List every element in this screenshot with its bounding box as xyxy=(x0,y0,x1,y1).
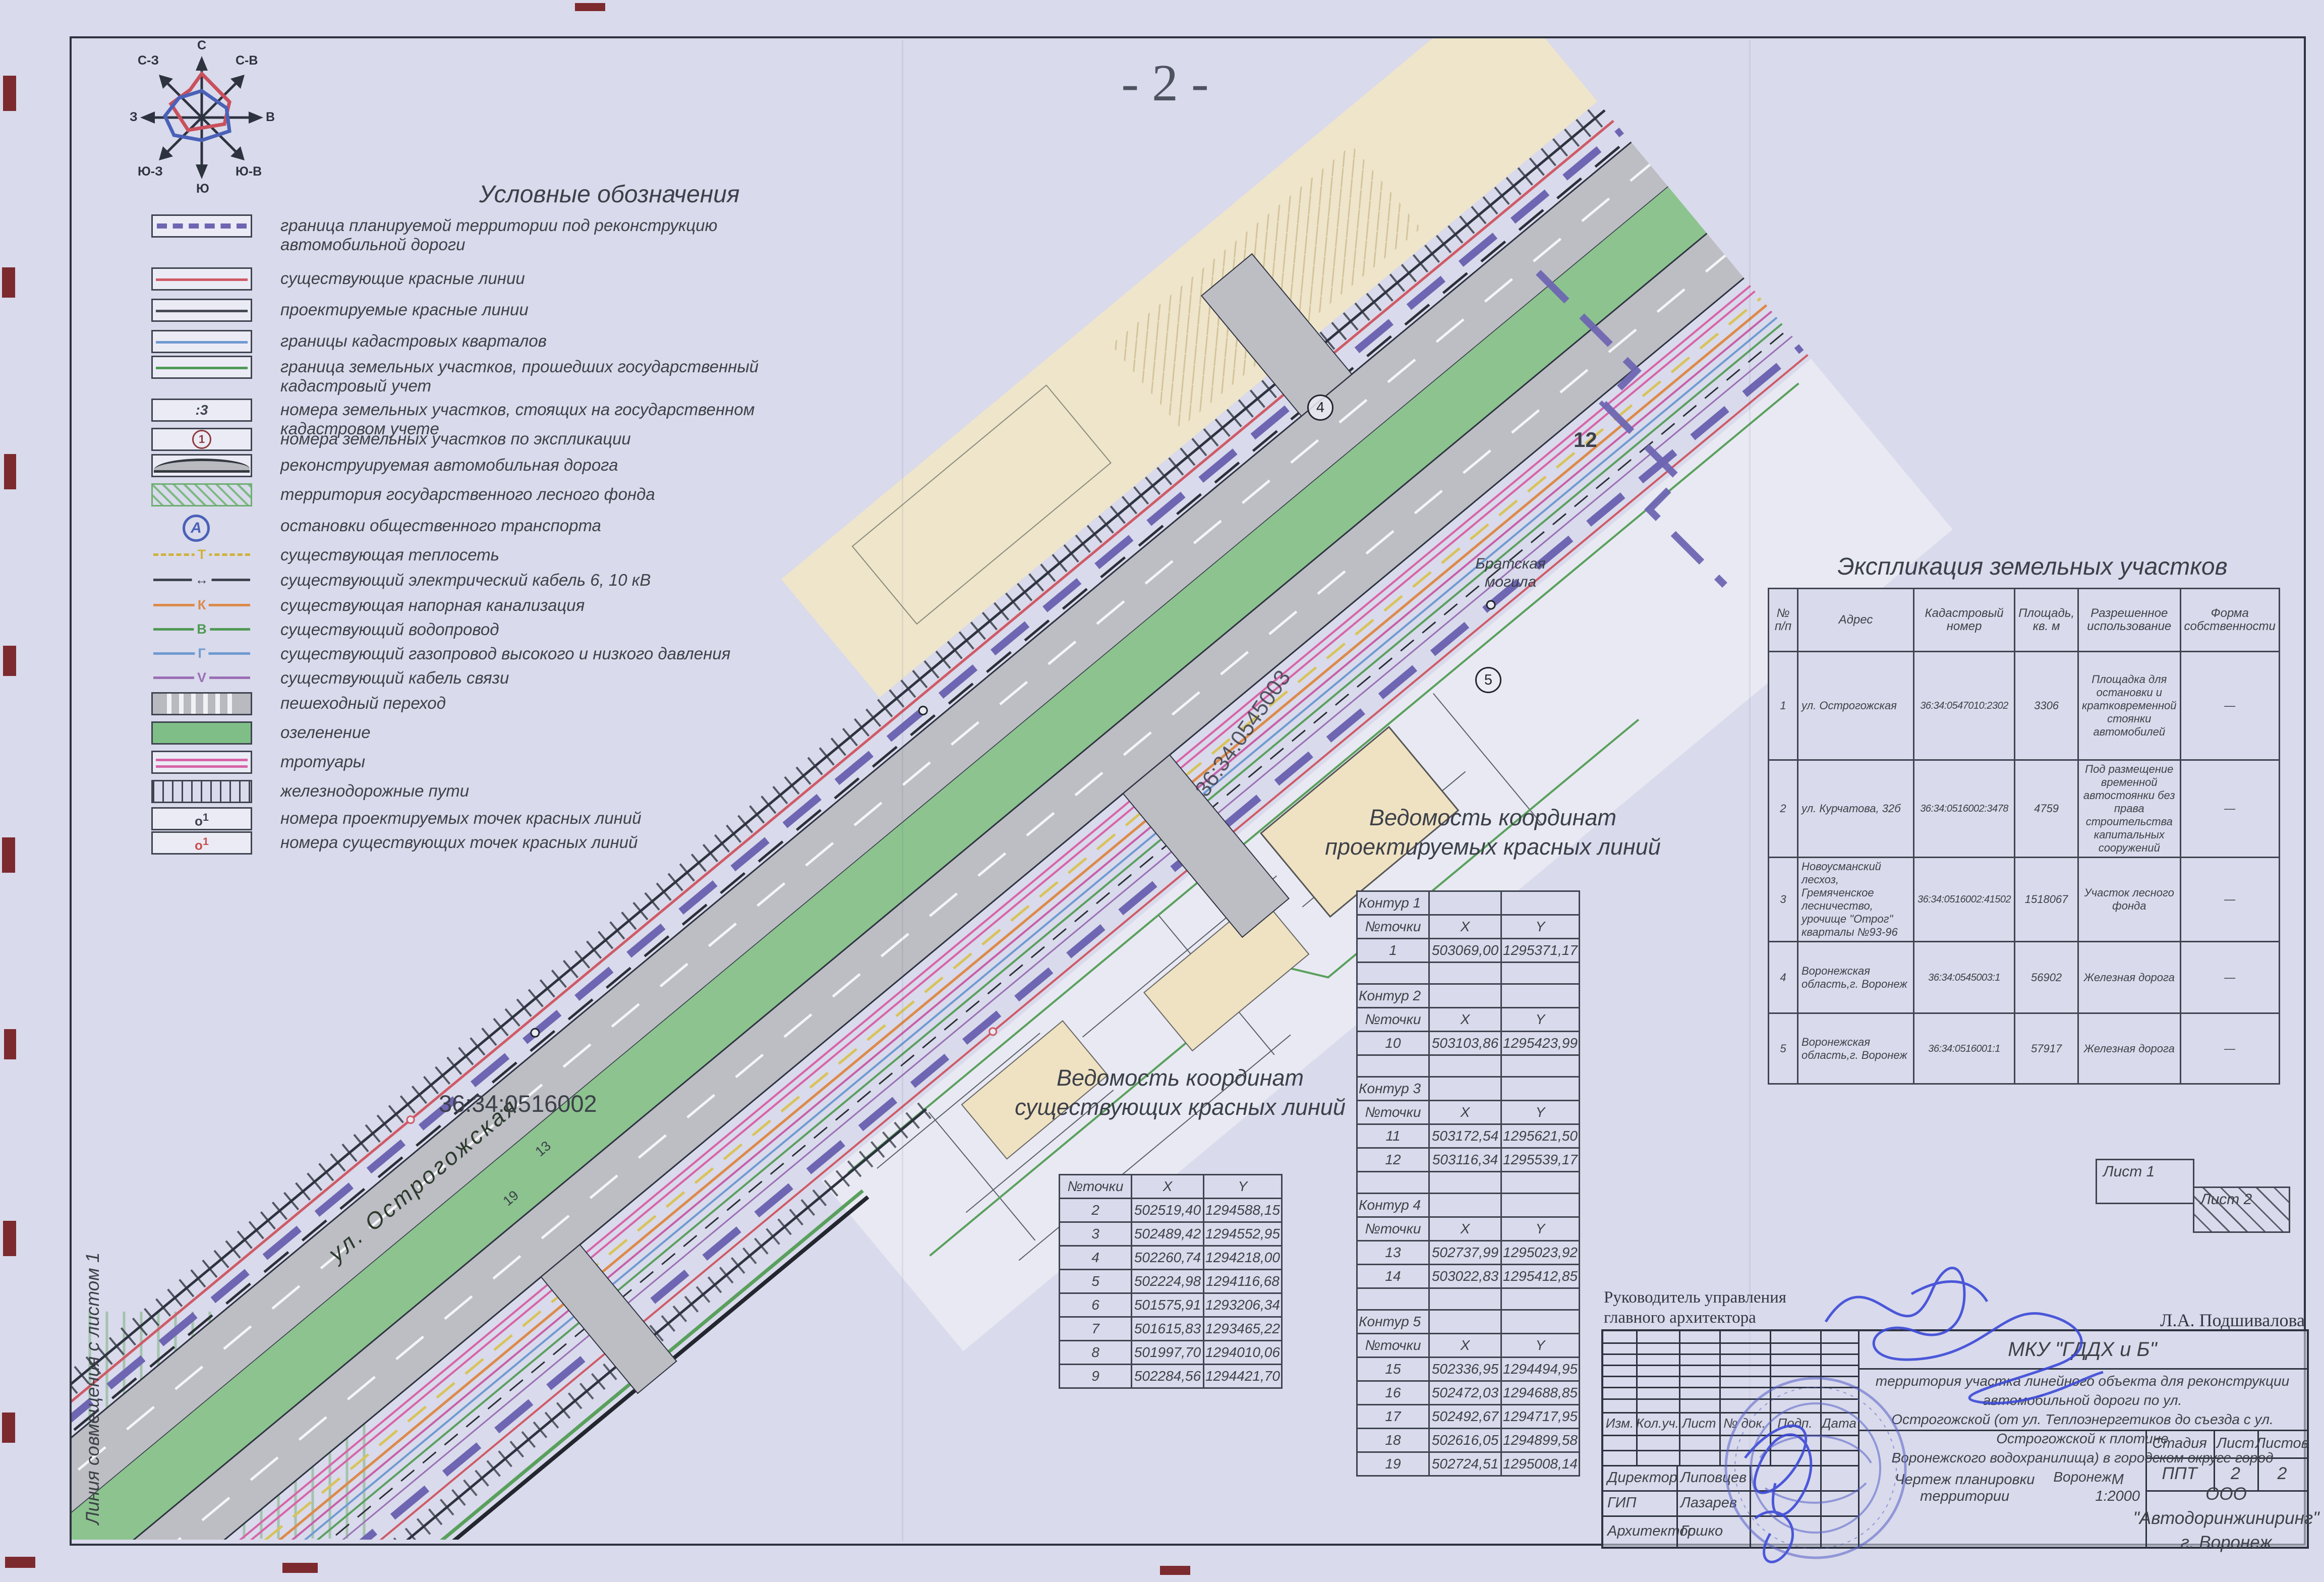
legend-symbol: o1 xyxy=(151,831,252,855)
contour-header-row: №точкиXY xyxy=(1357,1008,1580,1032)
cell: 12 xyxy=(1357,1148,1429,1172)
scan-mark xyxy=(4,454,16,489)
legend-item: существующие красные линии xyxy=(151,267,765,291)
cell: 17 xyxy=(1357,1405,1429,1429)
cell: 502224,98 xyxy=(1132,1270,1204,1293)
legend-item-label: граница планируемой территории под рекон… xyxy=(280,214,765,254)
cell: 14 xyxy=(1357,1265,1429,1288)
legend-item: пешеходный переход xyxy=(151,692,765,715)
proj-coords-title: Ведомость координат проектируемых красны… xyxy=(1316,803,1669,862)
legend-symbol: 1 xyxy=(151,428,252,451)
legend-item: ↔существующий электрический кабель 6, 10… xyxy=(151,569,765,592)
cell: 3306 xyxy=(2015,652,2078,760)
cell: Новоусманский лесхоз, Гремяченское лесни… xyxy=(1798,858,1914,942)
tb-name-director: Липовцев xyxy=(1676,1465,1754,1490)
scan-mark xyxy=(4,1029,16,1059)
sheet-index-1: Лист 1 xyxy=(2096,1159,2194,1204)
scan-mark xyxy=(3,1221,16,1256)
explication-row: 5Воронежская область,г. Воронеж36:34:051… xyxy=(1769,1013,2280,1084)
cell: — xyxy=(2180,858,2279,942)
header-cell: Адрес xyxy=(1798,589,1914,652)
exist-coords-title-line2: существующих красных линий xyxy=(1004,1093,1357,1122)
compass-label-nw: С-З xyxy=(138,53,159,68)
legend-item-label: номера земельных участков по экспликации xyxy=(280,428,765,448)
cell: 13 xyxy=(1357,1241,1429,1265)
compass-rose: С С-В В Ю-В Ю Ю-З З С-З xyxy=(129,39,280,196)
sheet-index-2: Лист 2 xyxy=(2193,1186,2290,1233)
page-number: - 2 - xyxy=(1039,53,1291,113)
match-line-note: Линия совмещения с листом 1 xyxy=(82,1253,103,1524)
cell xyxy=(1429,1288,1501,1310)
legend-item: Тсуществующая теплосеть xyxy=(151,544,765,567)
contour-header-row: №точкиXY xyxy=(1357,915,1580,939)
cell: ул. Курчатова, 32б xyxy=(1798,760,1914,858)
legend-symbol xyxy=(151,454,252,477)
approver-role-line2: главного архитектора xyxy=(1604,1308,1786,1328)
legend-symbol xyxy=(151,692,252,715)
legend-item: o1номера проектируемых точек красных лин… xyxy=(151,807,765,830)
cell: 3 xyxy=(1769,858,1798,942)
cell: 503022,83 xyxy=(1429,1265,1501,1288)
tb-sheet-label: Лист xyxy=(2214,1430,2257,1457)
cell: X xyxy=(1429,1008,1501,1032)
legend-item-label: существующий электрический кабель 6, 10 … xyxy=(280,569,765,590)
cell: 1518067 xyxy=(2015,858,2078,942)
cell xyxy=(1501,1055,1580,1077)
tb-col-dok: № док. xyxy=(1719,1412,1770,1435)
legend-symbol: o1 xyxy=(151,807,252,830)
header-cell: Кадастровый номер xyxy=(1914,589,2015,652)
tb-name-gip: Лазарев xyxy=(1676,1490,1754,1515)
legend-item-label: существующая теплосеть xyxy=(280,544,765,564)
approver-role: Руководитель управления главного архитек… xyxy=(1604,1287,1786,1328)
spacer-row xyxy=(1357,1288,1580,1310)
cell xyxy=(1357,963,1429,984)
legend-symbol xyxy=(151,356,252,379)
cell: 502336,95 xyxy=(1429,1358,1501,1381)
header-cell: Форма собственности xyxy=(2180,589,2279,652)
cell: 1295539,17 xyxy=(1501,1148,1580,1172)
contour-name-row: Контур 1 xyxy=(1357,891,1580,915)
cell: ул. Острогожская xyxy=(1798,652,1914,760)
tb-role-architect: Архитектор xyxy=(1603,1515,1680,1547)
coord-row: 4502260,741294218,00 xyxy=(1060,1246,1282,1270)
cell: Железная дорога xyxy=(2078,942,2181,1013)
cell xyxy=(1429,891,1501,915)
cell: 1294688,85 xyxy=(1501,1381,1580,1405)
cell: №точки xyxy=(1357,1101,1429,1124)
cell: 1294588,15 xyxy=(1204,1199,1282,1222)
cell: 1295412,85 xyxy=(1501,1265,1580,1288)
cell: 4 xyxy=(1060,1246,1132,1270)
legend-item-label: территория государственного лесного фонд… xyxy=(280,483,765,504)
spacer-row xyxy=(1357,1172,1580,1194)
tb-col-data: Дата xyxy=(1820,1412,1858,1435)
legend: граница планируемой территории под рекон… xyxy=(151,0,822,1)
scan-mark xyxy=(3,76,16,111)
cell: Y xyxy=(1501,1217,1580,1241)
cell: 5 xyxy=(1769,1013,1798,1084)
compass-label-w: З xyxy=(130,110,138,125)
cell: 2 xyxy=(1060,1199,1132,1222)
legend-item: границы кадастровых кварталов xyxy=(151,330,765,353)
cell xyxy=(1357,1288,1429,1310)
legend-symbol: А xyxy=(151,515,252,541)
cell xyxy=(1501,1172,1580,1194)
cell xyxy=(1501,1310,1580,1334)
coord-row: 19502724,511295008,14 xyxy=(1357,1452,1580,1476)
cell: 36:34:0516002:3478 xyxy=(1914,760,2015,858)
tb-role-director: Директор xyxy=(1603,1465,1680,1490)
scan-mark xyxy=(1160,1566,1190,1575)
cell: 503069,00 xyxy=(1429,939,1501,963)
legend-symbol xyxy=(151,330,252,353)
cell xyxy=(1501,1288,1580,1310)
cell: Y xyxy=(1501,1101,1580,1124)
cell: — xyxy=(2180,760,2279,858)
compass-label-sw: Ю-З xyxy=(138,164,163,179)
scan-mark xyxy=(3,646,16,676)
spacer-row xyxy=(1357,963,1580,984)
cell: 9 xyxy=(1060,1365,1132,1388)
cell: 3 xyxy=(1060,1222,1132,1246)
scan-mark xyxy=(2,837,15,873)
cell: 1294010,06 xyxy=(1204,1341,1282,1365)
legend-symbol: К xyxy=(151,594,252,617)
tb-drawing-title: Чертеж планировки территории xyxy=(1858,1472,2071,1505)
cell: 11 xyxy=(1357,1124,1429,1148)
contour-name-row: Контур 2 xyxy=(1357,984,1580,1008)
legend-item: проектируемые красные линии xyxy=(151,299,765,322)
coord-row: 17502492,671294717,95 xyxy=(1357,1405,1580,1429)
cell: 1294421,70 xyxy=(1204,1365,1282,1388)
cell: Площадка для остановки и кратковременной… xyxy=(2078,652,2181,760)
contour-name-row: Контур 5 xyxy=(1357,1310,1580,1334)
cell: Воронежская область,г. Воронеж xyxy=(1798,942,1914,1013)
legend-item-label: существующая напорная канализация xyxy=(280,594,765,615)
cell: 502519,40 xyxy=(1132,1199,1204,1222)
tb-col-izm: Изм. xyxy=(1603,1412,1636,1435)
contour-name-row: Контур 3 xyxy=(1357,1077,1580,1101)
legend-title: Условные обозначения xyxy=(479,181,740,208)
exist-coords-table: №точкиXY2502519,401294588,153502489,4212… xyxy=(1059,1174,1283,1389)
legend-item: территория государственного лесного фонд… xyxy=(151,483,765,506)
legend-symbol: Г xyxy=(151,643,252,666)
cell: 503172,54 xyxy=(1429,1124,1501,1148)
drawing-sheet: ул. Острогожская 36:34:0516002 36:34:054… xyxy=(0,0,2324,1582)
cell: 501997,70 xyxy=(1132,1341,1204,1365)
scan-mark xyxy=(282,1563,318,1573)
cell: 1295371,17 xyxy=(1501,939,1580,963)
cell: 1294116,68 xyxy=(1204,1270,1282,1293)
legend-item: железнодорожные пути xyxy=(151,780,765,803)
cell: 503103,86 xyxy=(1429,1032,1501,1055)
cell: 502616,05 xyxy=(1429,1429,1501,1452)
cell: 1295423,99 xyxy=(1501,1032,1580,1055)
tb-col-list: Лист xyxy=(1679,1412,1719,1435)
cell: 1294218,00 xyxy=(1204,1246,1282,1270)
tb-role-gip: ГИП xyxy=(1603,1490,1680,1515)
legend-symbol xyxy=(151,751,252,774)
spacer-row xyxy=(1357,1055,1580,1077)
cell: №точки xyxy=(1357,1008,1429,1032)
approver-name: Л.А. Подшивалова xyxy=(2138,1310,2305,1331)
cell: 10 xyxy=(1357,1032,1429,1055)
compass-label-ne: С-В xyxy=(236,53,258,68)
cell: 57917 xyxy=(2015,1013,2078,1084)
legend-symbol xyxy=(151,483,252,506)
cell: №точки xyxy=(1357,915,1429,939)
tb-col-koluch: Кол.уч. xyxy=(1636,1412,1679,1435)
legend-symbol: :3 xyxy=(151,399,252,422)
fold-crease xyxy=(902,40,903,1541)
cell: 502492,67 xyxy=(1429,1405,1501,1429)
cell: 36:34:0516002:41502 xyxy=(1914,858,2015,942)
explication-header-row: № п/п Адрес Кадастровый номер Площадь, к… xyxy=(1769,589,2280,652)
legend-item-label: граница земельных участков, прошедших го… xyxy=(280,356,765,395)
legend-item-label: железнодорожные пути xyxy=(280,780,765,801)
cell: 15 xyxy=(1357,1358,1429,1381)
cell: 36:34:0516001:1 xyxy=(1914,1013,2015,1084)
coord-row: 13502737,991295023,92 xyxy=(1357,1241,1580,1265)
cell: Участок лесного фонда xyxy=(2078,858,2181,942)
coord-row: 15502336,951294494,95 xyxy=(1357,1358,1580,1381)
legend-item: реконструируемая автомобильная дорога xyxy=(151,454,765,477)
cell: №точки xyxy=(1357,1334,1429,1358)
coord-row: 11503172,541295621,50 xyxy=(1357,1124,1580,1148)
coord-row: 10503103,861295423,99 xyxy=(1357,1032,1580,1055)
legend-item-label: проектируемые красные линии xyxy=(280,299,765,319)
cell xyxy=(1429,984,1501,1008)
cell xyxy=(1501,1077,1580,1101)
compass-label-e: В xyxy=(266,110,275,125)
legend-item: o1номера существующих точек красных лини… xyxy=(151,831,765,855)
contour-header-row: №точкиXY xyxy=(1357,1101,1580,1124)
cell: 1294899,58 xyxy=(1501,1429,1580,1452)
cell: №точки xyxy=(1357,1217,1429,1241)
explication-row: 2ул. Курчатова, 32б36:34:0516002:3478475… xyxy=(1769,760,2280,858)
cell: X xyxy=(1429,1101,1501,1124)
cell: X xyxy=(1132,1175,1204,1199)
coord-row: 2502519,401294588,15 xyxy=(1060,1199,1282,1222)
coord-row: 7501615,831293465,22 xyxy=(1060,1317,1282,1341)
cell: Контур 4 xyxy=(1357,1194,1429,1217)
legend-symbol: Т xyxy=(151,544,252,567)
legend-item-label: существующие красные линии xyxy=(280,267,765,288)
cell: 18 xyxy=(1357,1429,1429,1452)
legend-symbol xyxy=(151,721,252,745)
header-cell: Разрешенное использование xyxy=(2078,589,2181,652)
cell xyxy=(1501,963,1580,984)
legend-item-label: номера существующих точек красных линий xyxy=(280,831,765,852)
cell: 501575,91 xyxy=(1132,1293,1204,1317)
cell: 7 xyxy=(1060,1317,1132,1341)
legend-item-label: остановки общественного транспорта xyxy=(280,515,765,535)
cell xyxy=(1429,1077,1501,1101)
explication-row: 4Воронежская область,г. Воронеж36:34:054… xyxy=(1769,942,2280,1013)
cell: 36:34:0545003:1 xyxy=(1914,942,2015,1013)
cell: 36:34:0547010:2302 xyxy=(1914,652,2015,760)
cell: Контур 1 xyxy=(1357,891,1429,915)
contour-header-row: №точкиXY xyxy=(1357,1217,1580,1241)
legend-item: Гсуществующий газопровод высокого и низк… xyxy=(151,643,765,666)
proj-coords-title-line2: проектируемых красных линий xyxy=(1316,832,1669,862)
scan-mark xyxy=(575,3,605,11)
cell: 19 xyxy=(1357,1452,1429,1476)
legend-item-label: реконструируемая автомобильная дорога xyxy=(280,454,765,475)
scan-mark xyxy=(2,1412,15,1443)
cell: Y xyxy=(1501,915,1580,939)
cell: 502260,74 xyxy=(1132,1246,1204,1270)
legend-item: Ксуществующая напорная канализация xyxy=(151,594,765,617)
cell: Y xyxy=(1204,1175,1282,1199)
coord-row: 12503116,341295539,17 xyxy=(1357,1148,1580,1172)
cell: 502737,99 xyxy=(1429,1241,1501,1265)
cell: 1294717,95 xyxy=(1501,1405,1580,1429)
cell: 16 xyxy=(1357,1381,1429,1405)
coord-row: 9502284,561294421,70 xyxy=(1060,1365,1282,1388)
cell: 56902 xyxy=(2015,942,2078,1013)
tb-company-cell: ООО "Автодоринжиниринг" г. Воронеж xyxy=(2145,1490,2307,1547)
cell xyxy=(1429,1172,1501,1194)
explication-row: 1ул. Острогожская36:34:0547010:23023306П… xyxy=(1769,652,2280,760)
cell: 1293465,22 xyxy=(1204,1317,1282,1341)
coord-row: 5502224,981294116,68 xyxy=(1060,1270,1282,1293)
tb-drawing-title-cell: Чертеж планировки территории М 1:2000 xyxy=(1858,1430,2145,1547)
cell: 8 xyxy=(1060,1341,1132,1365)
compass-label-s: Ю xyxy=(196,182,209,196)
legend-symbol xyxy=(151,267,252,291)
tb-project-line1: территория участка линейного объекта для… xyxy=(1863,1372,2302,1410)
cell xyxy=(1501,891,1580,915)
explication-title: Экспликация земельных участков xyxy=(1826,552,2239,582)
coord-row: 1503069,001295371,17 xyxy=(1357,939,1580,963)
cell: 502489,42 xyxy=(1132,1222,1204,1246)
cell: 502284,56 xyxy=(1132,1365,1204,1388)
legend-item-label: существующий кабель связи xyxy=(280,667,765,688)
compass-label-se: Ю-В xyxy=(236,164,262,179)
tb-company: ООО "Автодоринжиниринг" xyxy=(2133,1482,2319,1531)
cell: X xyxy=(1429,1334,1501,1358)
tb-company-city: г. Воронеж xyxy=(2181,1531,2272,1555)
header-cell: Площадь, кв. м xyxy=(2015,589,2078,652)
tb-name-architect: Гошко xyxy=(1676,1515,1754,1547)
legend-item: Всуществующий водопровод xyxy=(151,618,765,642)
proj-coords-table: Контур 1№точкиXY1503069,001295371,17Конт… xyxy=(1356,890,1580,1477)
compass-label-n: С xyxy=(197,38,206,53)
legend-item-label: тротуары xyxy=(280,751,765,771)
contour-name-row: Контур 4 xyxy=(1357,1194,1580,1217)
tb-col-podp: Подп. xyxy=(1770,1412,1820,1435)
legend-symbol: V xyxy=(151,667,252,690)
cell: Y xyxy=(1501,1008,1580,1032)
approver-role-line1: Руководитель управления xyxy=(1604,1287,1786,1308)
coord-row: 6501575,911293206,34 xyxy=(1060,1293,1282,1317)
contour-header-row: №точкиXY xyxy=(1357,1334,1580,1358)
header-cell: № п/п xyxy=(1769,589,1798,652)
cell: — xyxy=(2180,652,2279,760)
exist-header-row: №точкиXY xyxy=(1060,1175,1282,1199)
legend-item-label: озеленение xyxy=(280,721,765,742)
legend-item-label: существующий газопровод высокого и низко… xyxy=(280,643,765,663)
cell: Контур 5 xyxy=(1357,1310,1429,1334)
cell: №точки xyxy=(1060,1175,1132,1199)
coord-row: 3502489,421294552,95 xyxy=(1060,1222,1282,1246)
tb-org: МКУ "ГДДХ и Б" xyxy=(1858,1331,2307,1368)
legend-item: озеленение xyxy=(151,721,765,745)
coord-row: 16502472,031294688,85 xyxy=(1357,1381,1580,1405)
cell: X xyxy=(1429,1217,1501,1241)
cell: 4759 xyxy=(2015,760,2078,858)
cell xyxy=(1429,963,1501,984)
proj-coords-title-line1: Ведомость координат xyxy=(1316,803,1669,832)
legend-item: 1номера земельных участков по экспликаци… xyxy=(151,428,765,451)
cell: X xyxy=(1429,915,1501,939)
legend-symbol xyxy=(151,214,252,238)
cell: 1293206,34 xyxy=(1204,1293,1282,1317)
legend-item: граница планируемой территории под рекон… xyxy=(151,214,765,254)
cell: 6 xyxy=(1060,1293,1132,1317)
explication-row: 3Новоусманский лесхоз, Гремяченское лесн… xyxy=(1769,858,2280,942)
scan-mark xyxy=(5,1557,35,1568)
cell: 1294494,95 xyxy=(1501,1358,1580,1381)
coord-row: 18502616,051294899,58 xyxy=(1357,1429,1580,1452)
cell xyxy=(1429,1055,1501,1077)
cell: Контур 2 xyxy=(1357,984,1429,1008)
cell: 5 xyxy=(1060,1270,1132,1293)
cell: 502724,51 xyxy=(1429,1452,1501,1476)
cell: 501615,83 xyxy=(1132,1317,1204,1341)
cell: 1294552,95 xyxy=(1204,1222,1282,1246)
exist-coords-title: Ведомость координат существующих красных… xyxy=(1004,1063,1357,1122)
legend-item-label: границы кадастровых кварталов xyxy=(280,330,765,351)
cell: — xyxy=(2180,1013,2279,1084)
cell: — xyxy=(2180,942,2279,1013)
cell: 2 xyxy=(1769,760,1798,858)
cell: 1295023,92 xyxy=(1501,1241,1580,1265)
tb-stage-label: Стадия xyxy=(2145,1430,2214,1457)
cell: 1 xyxy=(1769,652,1798,760)
cell xyxy=(1429,1310,1501,1334)
legend-item: граница земельных участков, прошедших го… xyxy=(151,356,765,395)
explication-table: № п/п Адрес Кадастровый номер Площадь, к… xyxy=(1768,588,2280,1085)
legend-item-label: номера проектируемых точек красных линий xyxy=(280,807,765,828)
legend-item-label: существующий водопровод xyxy=(280,618,765,639)
cell: Контур 3 xyxy=(1357,1077,1429,1101)
cell: 1295621,50 xyxy=(1501,1124,1580,1148)
cell: Воронежская область,г. Воронеж xyxy=(1798,1013,1914,1084)
cell xyxy=(1357,1172,1429,1194)
cell: 502472,03 xyxy=(1429,1381,1501,1405)
legend-symbol xyxy=(151,780,252,803)
cell: Y xyxy=(1501,1334,1580,1358)
cell: 503116,34 xyxy=(1429,1148,1501,1172)
tb-sheets-label: Листов xyxy=(2257,1430,2307,1457)
exist-coords-title-line1: Ведомость координат xyxy=(1004,1063,1357,1093)
legend-item: Vсуществующий кабель связи xyxy=(151,667,765,690)
cell: Под размещение временной автостоянки без… xyxy=(2078,760,2181,858)
title-block: Изм. Кол.уч. Лист № док. Подп. Дата МКУ … xyxy=(1601,1329,2309,1549)
cell xyxy=(1429,1194,1501,1217)
cell xyxy=(1357,1055,1429,1077)
cell: Железная дорога xyxy=(2078,1013,2181,1084)
cell: 1295008,14 xyxy=(1501,1452,1580,1476)
coord-row: 14503022,831295412,85 xyxy=(1357,1265,1580,1288)
cell xyxy=(1501,984,1580,1008)
cell: 4 xyxy=(1769,942,1798,1013)
legend-symbol: ↔ xyxy=(151,569,252,592)
legend-item: Аостановки общественного транспорта xyxy=(151,515,765,541)
